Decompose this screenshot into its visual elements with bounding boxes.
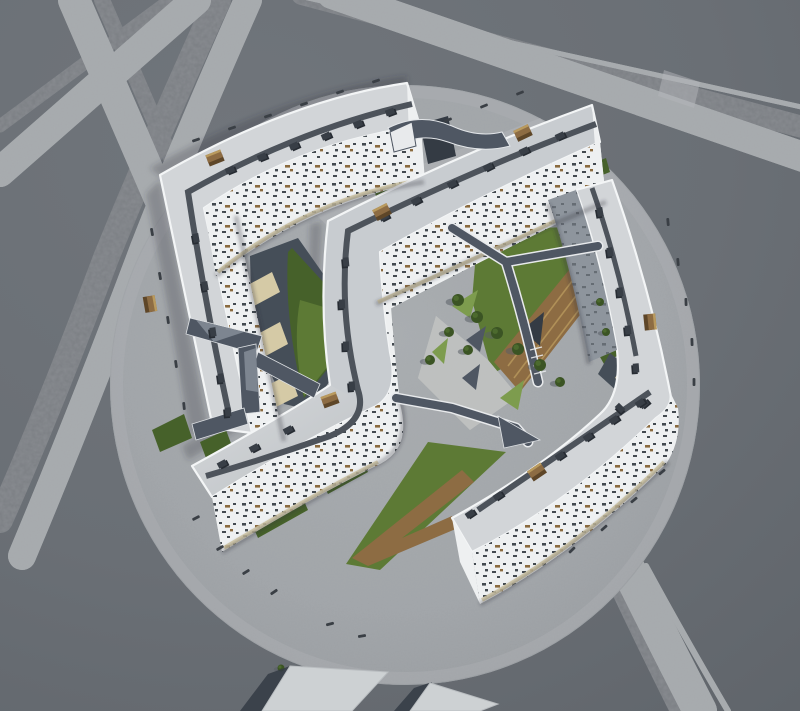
facade [212,252,403,552]
line [533,363,545,366]
roof-vent [635,397,648,409]
parapet [452,180,671,552]
shape [586,158,610,180]
elevated-walkway [452,228,506,262]
deck-stripes [508,240,615,388]
bench [192,137,200,142]
shape [250,492,308,538]
road [74,0,196,282]
east-stairs [620,372,644,395]
ramp-segment [238,344,260,414]
wood-kiosk [372,203,392,221]
walkway-edge [506,246,598,262]
courtyard-terraces [246,272,298,410]
wood-kiosks [143,124,657,481]
bench [150,228,154,236]
line [626,377,632,385]
ground-plane [0,0,800,711]
median-strip [0,0,170,126]
terrace-east [624,444,664,480]
elevated-walkway [396,398,528,442]
wood-switchback-ramp [352,470,474,566]
facade-end [407,83,425,182]
roof-vent [347,381,355,392]
storefront-strip [482,462,664,600]
slab-shadow [240,666,290,711]
facade [472,392,679,604]
roof-vent [341,341,349,352]
bridge-void [420,116,456,164]
wood-kiosk [143,295,158,313]
bench [270,589,278,596]
shadow [150,76,407,178]
facade-shaded [548,190,617,362]
bridge-south [396,398,540,448]
plaza-edge-ring [117,92,693,678]
roof-vent [631,363,639,374]
shape [452,290,478,318]
line [534,371,546,374]
roof-vent [217,458,230,470]
roof-vent [614,403,627,416]
tree [485,327,503,339]
tree [550,377,565,387]
wood-kiosk [513,124,533,142]
roof-vents [191,107,652,520]
courtyards [152,118,664,570]
roof-vent [555,450,568,462]
cast-shadows [146,76,407,460]
tree [598,328,610,336]
roof-walkway [188,104,412,428]
line [620,372,626,380]
grass-patches [152,158,628,538]
walkway-stairs [530,347,546,374]
roof-southwest [192,385,372,497]
median-strip [302,0,800,128]
roof-vent [583,431,596,443]
elevated-walkway [506,262,538,382]
roof-vent [609,414,622,426]
crosswalk-patch [658,70,700,108]
ramp-facet [244,348,258,392]
bench [516,90,524,96]
bridge-west-zigzag [186,318,320,440]
contact-shadow [548,204,589,364]
bench [300,101,308,106]
facade-windows [204,126,424,276]
contact-shadow [480,462,668,604]
tree [528,359,546,371]
building-east-boomerang [452,180,679,604]
roof [160,83,420,433]
walkway-edge [452,228,506,262]
road [0,0,196,172]
bench [600,524,608,531]
bench [444,117,452,123]
roof-vent [257,152,270,163]
planting-wedges [432,290,524,410]
facade [204,208,284,441]
wood-deck-wedge [494,232,618,392]
tree [506,343,524,355]
shape [564,184,602,212]
plaza-benches [150,78,695,638]
bridge-deck [388,119,510,149]
facade [380,142,606,310]
bench [326,622,334,627]
terrace-strip [234,188,310,234]
bench [228,125,236,130]
roof-vent [385,107,398,118]
bench [166,316,170,324]
roof [192,105,600,497]
contact-shadow [376,202,606,304]
bench [192,515,200,521]
roof-vent [555,131,568,142]
facade-end [452,518,480,604]
line [638,387,644,395]
contact-shadow [216,182,424,276]
storefront-strip [218,180,422,272]
slate-court-east [598,353,655,412]
wood-kiosk [205,149,224,166]
road-curb [290,0,800,108]
tree [292,675,303,682]
tree [458,345,473,355]
shape [152,414,192,452]
foreground-roof [410,683,498,711]
bench [630,496,638,503]
tree [274,665,285,672]
buildings [160,83,679,604]
tree [592,298,604,306]
tree [420,355,435,365]
median-strip [0,0,218,520]
shape [408,180,450,210]
roof-vent [639,398,652,411]
bench [174,360,178,368]
building-northwest [160,83,425,441]
trees [274,294,610,689]
bench [358,634,366,638]
roof-vent [208,327,217,339]
line [530,347,542,350]
road-curb [646,566,728,711]
line [520,262,615,388]
facade [204,126,424,276]
green-roof-court-center [472,226,616,374]
walkway-y [452,228,598,382]
wood-kiosk [527,463,547,482]
shadow [146,180,208,436]
terrazzo-court [418,316,518,430]
shape [500,380,524,410]
roof-vent [341,257,349,268]
shape [462,364,480,390]
tree [439,327,454,337]
circular-plaza [110,85,700,685]
elevated-walkway [506,246,598,262]
walkway-edge [506,262,538,382]
line [531,355,543,358]
roof-vent [605,247,614,259]
shape [320,456,368,494]
bridge-north [388,116,510,164]
shadow [182,222,322,460]
wood-deck-east [615,366,654,400]
roof-vent [200,281,209,293]
shape [262,374,298,410]
facade-windows [472,392,679,604]
bench [336,89,344,94]
roof-vent [216,373,225,385]
road [22,0,248,556]
line [508,240,603,366]
roof-vent [337,299,345,310]
bench [693,378,696,386]
roof-vent [249,442,262,454]
deck-void [522,312,544,346]
aerial-scene [0,0,800,711]
bench [666,218,669,226]
bench [684,298,687,306]
bench [264,113,272,118]
storefront-strip [378,198,604,302]
roof-vent [353,119,366,130]
bench [690,338,693,346]
road [332,0,800,158]
facade-windows [204,208,284,441]
building-central-zigzag [192,105,606,552]
foreground-roofs [240,666,498,711]
roof-vent [595,207,604,219]
bench [216,545,224,551]
contact-shadow [222,400,403,552]
bench [676,258,679,266]
roof-vent [321,131,334,142]
storefront-strip [224,462,378,548]
slate-wedges [462,326,486,390]
ramp-segment [192,408,248,440]
roof-vent [447,179,460,191]
shape [372,176,396,196]
shape [466,326,486,352]
roof-vent [411,195,424,207]
roof-vent [623,325,632,336]
ramp-facet [196,320,244,342]
facade-windows [212,252,403,552]
ramp-segment [186,318,262,354]
ramp-segment [254,352,320,398]
plaza-paving [110,85,700,685]
roof-vent [191,233,200,245]
walkway-edge [396,398,528,442]
shape [200,430,232,458]
road [612,536,700,711]
roof-vent [615,287,624,298]
bench [158,272,162,280]
bench [568,546,576,554]
tree [446,294,464,306]
parapet [192,105,600,497]
green-roof-lit [297,300,336,396]
roof-vent [225,165,238,176]
bench [658,468,666,475]
shape [254,322,288,358]
bridge-truss [390,122,416,152]
tree [465,311,483,323]
bench [480,103,488,109]
shape [246,272,280,306]
roof-vent [483,162,496,174]
roof [452,180,671,552]
line [632,382,638,390]
green-roof-court-west [287,248,338,398]
facade-windows [548,190,617,362]
slab-shadow [394,682,432,711]
bench [242,569,250,576]
facade-end [592,105,606,200]
roof-vent [519,146,532,157]
roof-vent [283,424,296,436]
median-strip [596,540,678,711]
slate-moat [250,238,344,410]
roof-walkway [592,188,636,356]
bench [182,402,186,410]
green-wedge-south [346,442,506,570]
roads [0,0,800,711]
roof-walkway [206,124,596,476]
roof-vent [493,490,506,502]
road-medians [0,0,800,711]
median-strip [102,0,216,262]
shape [596,340,620,364]
roof-vent [223,407,232,418]
shape [432,338,448,364]
roof-walkway [478,392,650,510]
paved-court [310,118,582,252]
tree [310,683,319,689]
wood-kiosk [643,313,657,330]
wood-kiosk [320,392,339,409]
shape [606,462,628,484]
foreground-roof [262,666,388,711]
contact-shadows [216,182,668,604]
architectural-render [0,0,800,711]
roof-vent [289,141,302,152]
roof-vent [379,211,392,223]
pavilion-roof [498,416,540,448]
parapet [160,83,420,433]
facade-windows [380,142,606,310]
bench [372,78,380,83]
contact-shadow [236,216,284,441]
roof-vent [465,508,478,520]
line [514,252,609,378]
bridges [186,116,598,448]
